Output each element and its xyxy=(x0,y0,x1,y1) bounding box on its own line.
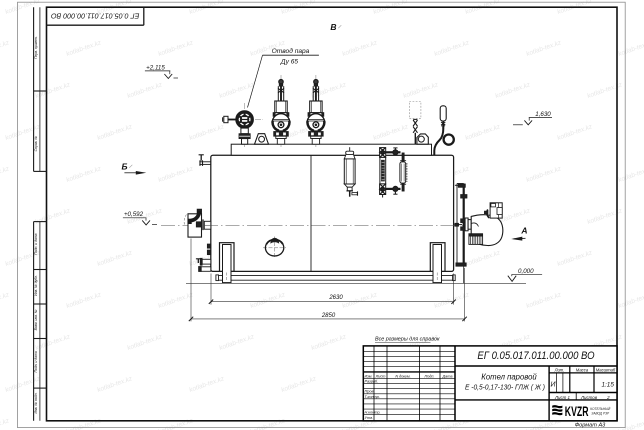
svg-text:ЕГ 0.05.017.011.00.000 ВО: ЕГ 0.05.017.011.00.000 ВО xyxy=(477,351,594,363)
svg-text:Отвод пара: Отвод пара xyxy=(272,47,310,55)
svg-text:А: А xyxy=(520,226,527,236)
svg-text:Утв.: Утв. xyxy=(365,416,374,420)
svg-text:Формат А3: Формат А3 xyxy=(575,423,606,429)
svg-text:Взам. инв. №: Взам. инв. № xyxy=(34,309,38,330)
svg-text:0,000: 0,000 xyxy=(518,268,534,275)
svg-text:Пров.: Пров. xyxy=(365,390,375,394)
svg-text:В: В xyxy=(330,22,336,32)
svg-text:Котел паровой: Котел паровой xyxy=(481,372,537,381)
svg-text:Разраб.: Разраб. xyxy=(365,380,379,384)
svg-text:1,630: 1,630 xyxy=(535,111,551,118)
svg-text:KVZR: KVZR xyxy=(565,405,589,419)
svg-text:Все размеры для справок: Все размеры для справок xyxy=(375,336,440,342)
svg-text:Подп.: Подп. xyxy=(424,374,434,378)
svg-text:Н.контр.: Н.контр. xyxy=(365,410,381,414)
svg-text:Листов: Листов xyxy=(580,395,598,400)
svg-text:Инв. № дубл.: Инв. № дубл. xyxy=(34,275,38,296)
svg-text:Подп. и дата: Подп. и дата xyxy=(34,233,38,254)
svg-text:Справ. №: Справ. № xyxy=(34,136,38,152)
svg-text:Ду 65: Ду 65 xyxy=(280,59,299,66)
svg-text:2630: 2630 xyxy=(328,295,343,301)
svg-text:Масса: Масса xyxy=(576,367,589,372)
svg-text:Е -0,5-0,17-130- ГЛЖ ( Ж ): Е -0,5-0,17-130- ГЛЖ ( Ж ) xyxy=(465,384,545,391)
svg-text:Инв. № подл.: Инв. № подл. xyxy=(34,392,38,413)
svg-text:ЗАВОД РЗР: ЗАВОД РЗР xyxy=(591,412,610,416)
svg-text:Лит.: Лит. xyxy=(554,367,565,372)
svg-text:ЕГ 0.05.017.011.00.000 ВО: ЕГ 0.05.017.011.00.000 ВО xyxy=(51,12,140,21)
svg-text:+2,115: +2,115 xyxy=(146,64,165,71)
svg-text:2850: 2850 xyxy=(321,313,336,319)
svg-text:Дата: Дата xyxy=(441,374,452,378)
svg-text:N докум.: N докум. xyxy=(395,374,410,378)
svg-text:Лист 1: Лист 1 xyxy=(554,395,571,400)
svg-text:Подп. и дата: Подп. и дата xyxy=(34,351,38,372)
svg-text:Б: Б xyxy=(121,162,127,172)
svg-text:1:15: 1:15 xyxy=(601,382,614,389)
svg-text:+0,592: +0,592 xyxy=(124,211,144,218)
svg-text:Масштаб: Масштаб xyxy=(596,367,616,372)
svg-text:Лист: Лист xyxy=(375,374,386,378)
svg-text:2: 2 xyxy=(606,395,610,400)
svg-text:Т.контр.: Т.контр. xyxy=(365,395,380,399)
svg-text:Перв. примен.: Перв. примен. xyxy=(34,36,38,59)
svg-text:Изм.: Изм. xyxy=(364,374,372,378)
svg-text:КОТЕЛЬНЫЙ: КОТЕЛЬНЫЙ xyxy=(590,407,611,411)
